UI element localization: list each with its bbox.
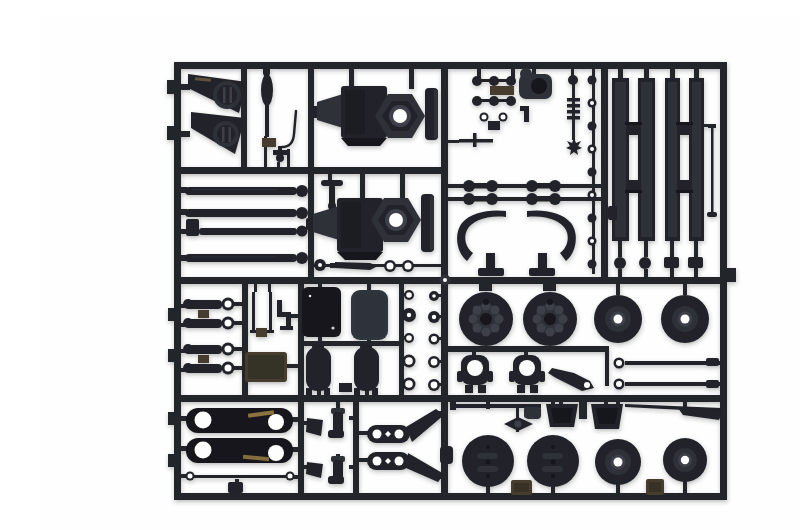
grommet-hole <box>318 263 322 267</box>
knob <box>506 76 516 86</box>
dumbbell-ball <box>549 193 561 205</box>
air-tank-foot <box>372 388 378 396</box>
washer-hole <box>432 315 436 319</box>
tie-rod-eye-hole <box>188 474 193 479</box>
knob <box>472 76 482 86</box>
hub-hole <box>681 315 690 324</box>
knob <box>472 96 482 106</box>
bearing-hole <box>393 109 407 123</box>
u-pipe-foot <box>267 330 274 333</box>
frame-top <box>174 62 727 69</box>
link-eye-hole <box>195 412 212 429</box>
wheel-slot <box>477 453 498 459</box>
rod-ball <box>183 318 193 328</box>
dumbbell-ball <box>463 180 475 192</box>
rod-ball <box>183 344 193 354</box>
runner-v2 <box>308 65 314 284</box>
column-knob-hole <box>590 147 594 151</box>
edge-tab <box>168 412 175 425</box>
drum-lug <box>491 306 500 315</box>
bronze-block <box>198 310 209 318</box>
drum-center <box>544 313 556 325</box>
rail-clip <box>608 206 617 220</box>
valve-fitting-boss <box>276 154 284 162</box>
u-pipe-leg <box>269 292 272 332</box>
runner-v4 <box>601 65 608 280</box>
housing-skirt <box>337 252 383 260</box>
link-eye-hole <box>268 414 284 430</box>
hub-cap-slot <box>230 87 233 103</box>
shaft-ball-end <box>296 207 308 219</box>
square-pad <box>488 121 500 130</box>
cross-member-flange <box>676 122 693 125</box>
edge-tab-right <box>727 268 736 282</box>
air-filter-mouth <box>531 78 547 94</box>
knuckle-ear <box>509 371 515 382</box>
thin-tie-rod <box>190 475 290 478</box>
frame-bottom <box>174 493 727 500</box>
dumbbell-ball <box>463 193 475 205</box>
hub-hole <box>681 456 689 464</box>
leaf-spring-link <box>186 438 293 463</box>
bronze-block-shade <box>514 483 529 492</box>
dumbbell-ball <box>486 193 498 205</box>
rod-eye-hole <box>225 301 232 308</box>
small-block <box>339 383 352 392</box>
shaft-sheen <box>192 256 277 258</box>
column-knob <box>588 76 597 85</box>
brake-drum-wheel <box>459 292 513 346</box>
slotted-wheel <box>462 435 514 487</box>
drum-lug <box>555 306 564 315</box>
bronze-block-shade <box>649 482 661 492</box>
gear-lever-shaft <box>265 104 269 137</box>
column-knob <box>588 168 597 177</box>
air-filter-dome <box>520 68 532 80</box>
drum-notch <box>547 299 553 305</box>
washer-hole <box>406 292 412 298</box>
tie-rod-eye-hole <box>616 381 622 387</box>
plate-pip <box>309 295 312 298</box>
cross-member-flange <box>676 190 693 193</box>
rail-web <box>641 82 652 237</box>
washer-hole <box>407 313 411 317</box>
air-tank <box>306 347 331 391</box>
arm-hole <box>395 430 404 439</box>
bronze-pad <box>256 328 267 337</box>
wheel-slot <box>542 466 563 472</box>
drum-lug <box>533 315 542 324</box>
drum-lug <box>473 306 482 315</box>
gear-lever <box>261 74 273 106</box>
washer-hole <box>482 115 487 120</box>
rod-eye-hole <box>225 346 232 353</box>
knob <box>506 96 516 106</box>
air-tank-cap <box>312 344 324 349</box>
column-knob-hole <box>590 101 594 105</box>
runner-v1 <box>241 65 247 170</box>
hub-cap-face <box>217 125 235 143</box>
end-block <box>688 257 703 268</box>
bucket-inner <box>551 408 573 423</box>
runner-hsub-wheels <box>444 346 609 352</box>
wheel-slot <box>542 453 563 459</box>
flange-edge <box>430 196 434 250</box>
mud-bucket <box>591 404 623 429</box>
knuckle-tab <box>478 385 486 393</box>
o-ring-hole <box>405 263 412 270</box>
wheel-pip <box>551 460 556 465</box>
washer-hole <box>406 335 412 341</box>
end-knob <box>639 257 651 269</box>
hub-hole <box>614 458 623 467</box>
washer-hole <box>431 359 438 366</box>
hub-hole <box>614 315 623 324</box>
edge-tab <box>168 349 175 362</box>
l-bracket <box>524 111 529 122</box>
spring-coil <box>567 98 580 102</box>
brake-drum-wheel <box>523 292 577 346</box>
antenna-foot <box>707 212 717 217</box>
drum-lug <box>537 324 546 333</box>
end-knob <box>614 257 626 269</box>
edge-tab <box>168 308 175 321</box>
hub-cap-slot <box>223 87 226 103</box>
edge-tab <box>167 126 175 140</box>
leaf-spring-link <box>186 408 293 433</box>
runner-washers <box>399 282 404 398</box>
drive-shaft <box>185 209 297 217</box>
air-tank-foot <box>354 388 360 396</box>
drive-shaft <box>199 228 297 235</box>
knuckle-hole <box>467 360 483 376</box>
dumbbell-ball <box>526 193 538 205</box>
bowtie-boss <box>515 421 522 428</box>
knuckle-tab <box>517 385 525 393</box>
drum-notch <box>483 299 489 305</box>
wheel-slot <box>477 466 498 472</box>
link-eye-hole <box>268 445 284 461</box>
column-knob <box>588 260 597 269</box>
pipe-clip <box>262 138 276 147</box>
mold-mark-hole <box>443 278 447 282</box>
antenna-top <box>708 124 716 128</box>
drum-lug <box>546 328 555 337</box>
drum-center <box>480 313 492 325</box>
shaft-ball-end <box>297 226 308 237</box>
sprue-photo: Black plastic model-kit sprue with truck… <box>40 16 800 530</box>
washer-hole <box>432 294 436 298</box>
step-bracket <box>277 300 282 314</box>
rail-web <box>668 82 677 237</box>
shaft-sheen <box>192 189 277 191</box>
tie-rod-block <box>706 358 719 366</box>
housing-shade <box>345 90 365 134</box>
washer-hole <box>431 336 437 342</box>
hub-disc-wheel <box>663 438 707 482</box>
washer-hole <box>431 382 438 389</box>
link-eye-hole <box>195 442 212 459</box>
cross-member-flange <box>625 190 642 193</box>
washer-hole <box>405 380 413 388</box>
shaft-ball-end <box>296 185 308 197</box>
shaft-ball-end <box>296 252 308 264</box>
spring-coil <box>567 104 580 108</box>
mud-bucket <box>546 404 578 427</box>
knuckle-ear <box>487 371 493 382</box>
column-knob <box>588 122 597 131</box>
knuckle-hole <box>519 360 535 376</box>
column-knob <box>588 214 597 223</box>
arm-hole <box>395 457 404 466</box>
end-block <box>664 257 679 268</box>
wheel-pip <box>551 474 555 478</box>
bearing-hole <box>389 213 403 227</box>
air-tank <box>354 347 379 391</box>
arm-hole <box>373 457 382 466</box>
runner-vb1 <box>298 400 304 496</box>
hub-disc-wheel <box>661 295 709 343</box>
u-pipe-foot <box>250 330 257 333</box>
slotted-wheel <box>527 435 579 487</box>
knuckle-ear <box>539 371 545 382</box>
housing-skirt <box>341 138 387 146</box>
washer-hole <box>501 115 506 120</box>
flange-edge <box>434 90 438 138</box>
tie-rod-eye-hole <box>616 360 622 366</box>
drive-shaft <box>185 254 297 262</box>
knob <box>489 76 499 86</box>
grey-filter-block <box>526 408 540 419</box>
step-bracket <box>280 326 293 330</box>
rod-ball <box>183 299 193 309</box>
edge-tab <box>167 80 175 94</box>
knuckle-ear <box>457 371 463 382</box>
cross-member-flange <box>625 122 642 125</box>
rod-ball <box>183 363 193 373</box>
drive-shaft <box>185 187 297 195</box>
column-knob-hole <box>590 193 594 197</box>
runner-h2 <box>174 277 727 284</box>
runner-h3 <box>174 395 727 402</box>
knob <box>489 96 499 106</box>
wheel-pip <box>486 460 491 465</box>
dumbbell-ball <box>486 180 498 192</box>
knuckle-tab <box>530 385 538 393</box>
lever-bracket-hole <box>584 382 590 388</box>
edge-tab <box>168 454 175 467</box>
air-tank-cap <box>360 344 372 349</box>
plate-pip <box>331 326 334 329</box>
deflector-foot <box>478 268 504 276</box>
rod-eye-hole <box>225 320 232 327</box>
elbow-foot <box>328 430 344 438</box>
drum-lug <box>495 315 504 324</box>
wheel-pip <box>486 474 490 478</box>
l-bracket <box>520 106 529 111</box>
tie-rod-block <box>706 380 719 388</box>
air-tank-foot <box>306 388 312 396</box>
mount-block <box>228 482 243 493</box>
bronze-plate-shade <box>248 355 284 379</box>
dark-plate <box>302 287 341 337</box>
deflector-foot <box>529 268 555 276</box>
drum-lug <box>491 324 500 333</box>
bronze-block <box>198 355 209 363</box>
column-knob-hole <box>590 239 594 243</box>
rod-eye-hole <box>225 365 232 372</box>
runner-vb2 <box>353 400 359 496</box>
drum-lug <box>555 324 564 333</box>
u-pipe-leg <box>252 292 255 332</box>
spring-coil <box>567 110 580 114</box>
hub-disc-wheel <box>594 295 642 343</box>
hub-cap-face <box>217 85 237 105</box>
wheel-pip <box>486 445 490 449</box>
hub-disc-wheel <box>595 439 641 485</box>
housing-shade <box>341 202 361 248</box>
drum-lug <box>559 315 568 324</box>
spring-coil <box>567 116 580 120</box>
elbow-foot <box>328 476 344 484</box>
knuckle-tab <box>465 385 473 393</box>
dumbbell-ball <box>549 180 561 192</box>
tie-rod-eye-hole <box>288 474 293 479</box>
washer-hole <box>405 357 413 365</box>
drum-lug <box>469 315 478 324</box>
steel-plate-face <box>354 293 385 337</box>
axle-end-knob <box>450 402 456 410</box>
drum-lug <box>537 306 546 315</box>
dumbbell-ball <box>526 180 538 192</box>
hub-cap-slot <box>222 127 225 142</box>
deflector-leg <box>538 253 547 270</box>
hub-cap-slot <box>229 127 232 142</box>
tee-rod-post <box>473 133 477 147</box>
antenna-rod <box>711 128 714 214</box>
drum-lug <box>473 324 482 333</box>
wheel-pip <box>551 445 555 449</box>
bucket-inner <box>596 408 618 424</box>
shaft-block <box>186 219 199 236</box>
chain-knob <box>568 75 578 85</box>
deflector-leg <box>486 253 495 270</box>
bronze-pad <box>490 86 514 95</box>
small-housing <box>440 446 453 464</box>
drum-lug <box>482 328 491 337</box>
arm-hole <box>373 430 382 439</box>
air-tank-foot <box>324 388 330 396</box>
rail-web <box>692 82 701 237</box>
o-ring-hole <box>387 263 394 270</box>
